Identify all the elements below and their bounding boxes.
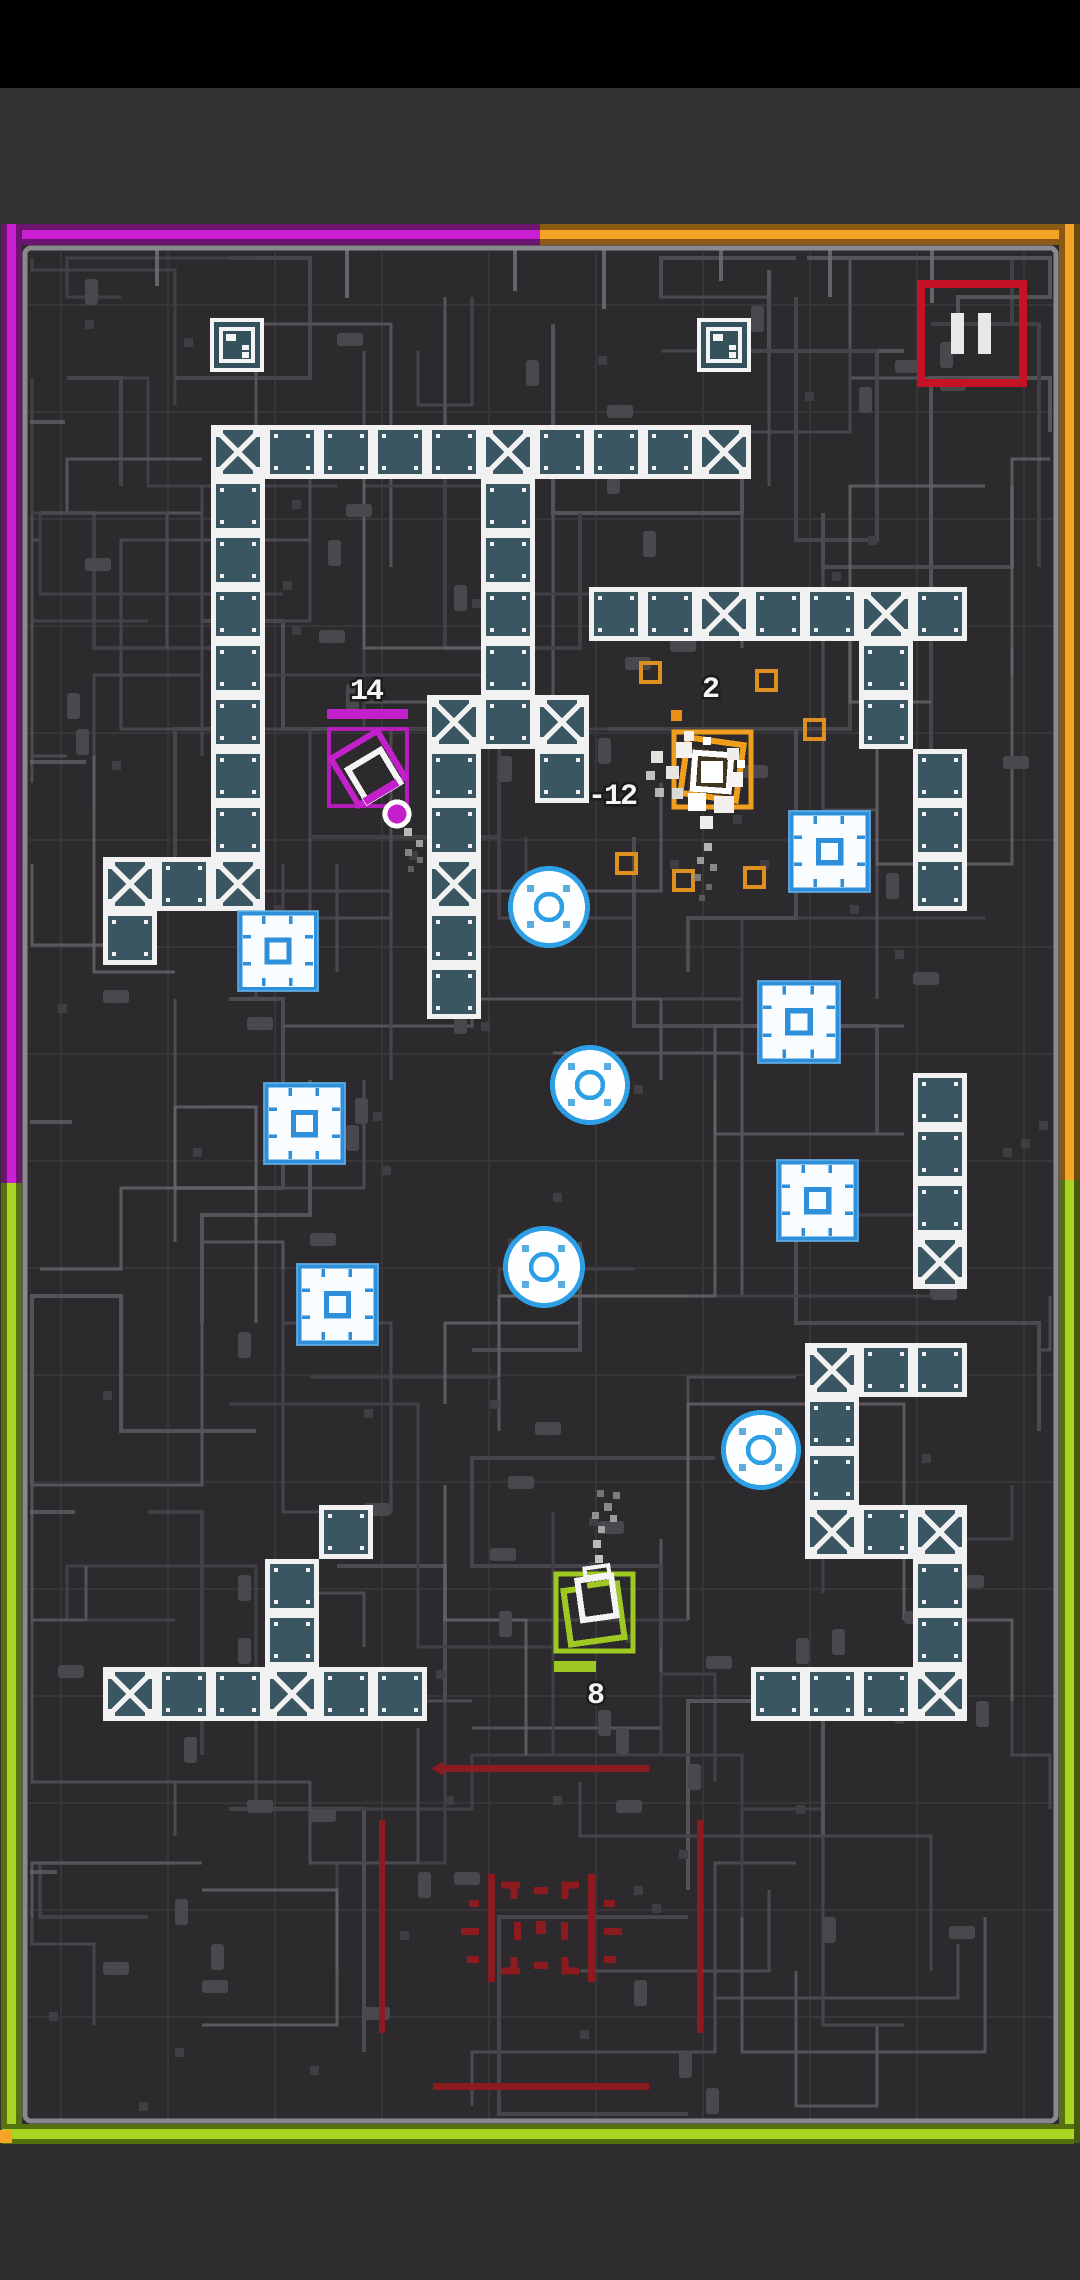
svg-text:8: 8 [587,1679,604,1713]
svg-text:14: 14 [350,675,384,709]
svg-text:-12: -12 [588,780,637,814]
svg-text:2: 2 [702,673,719,707]
